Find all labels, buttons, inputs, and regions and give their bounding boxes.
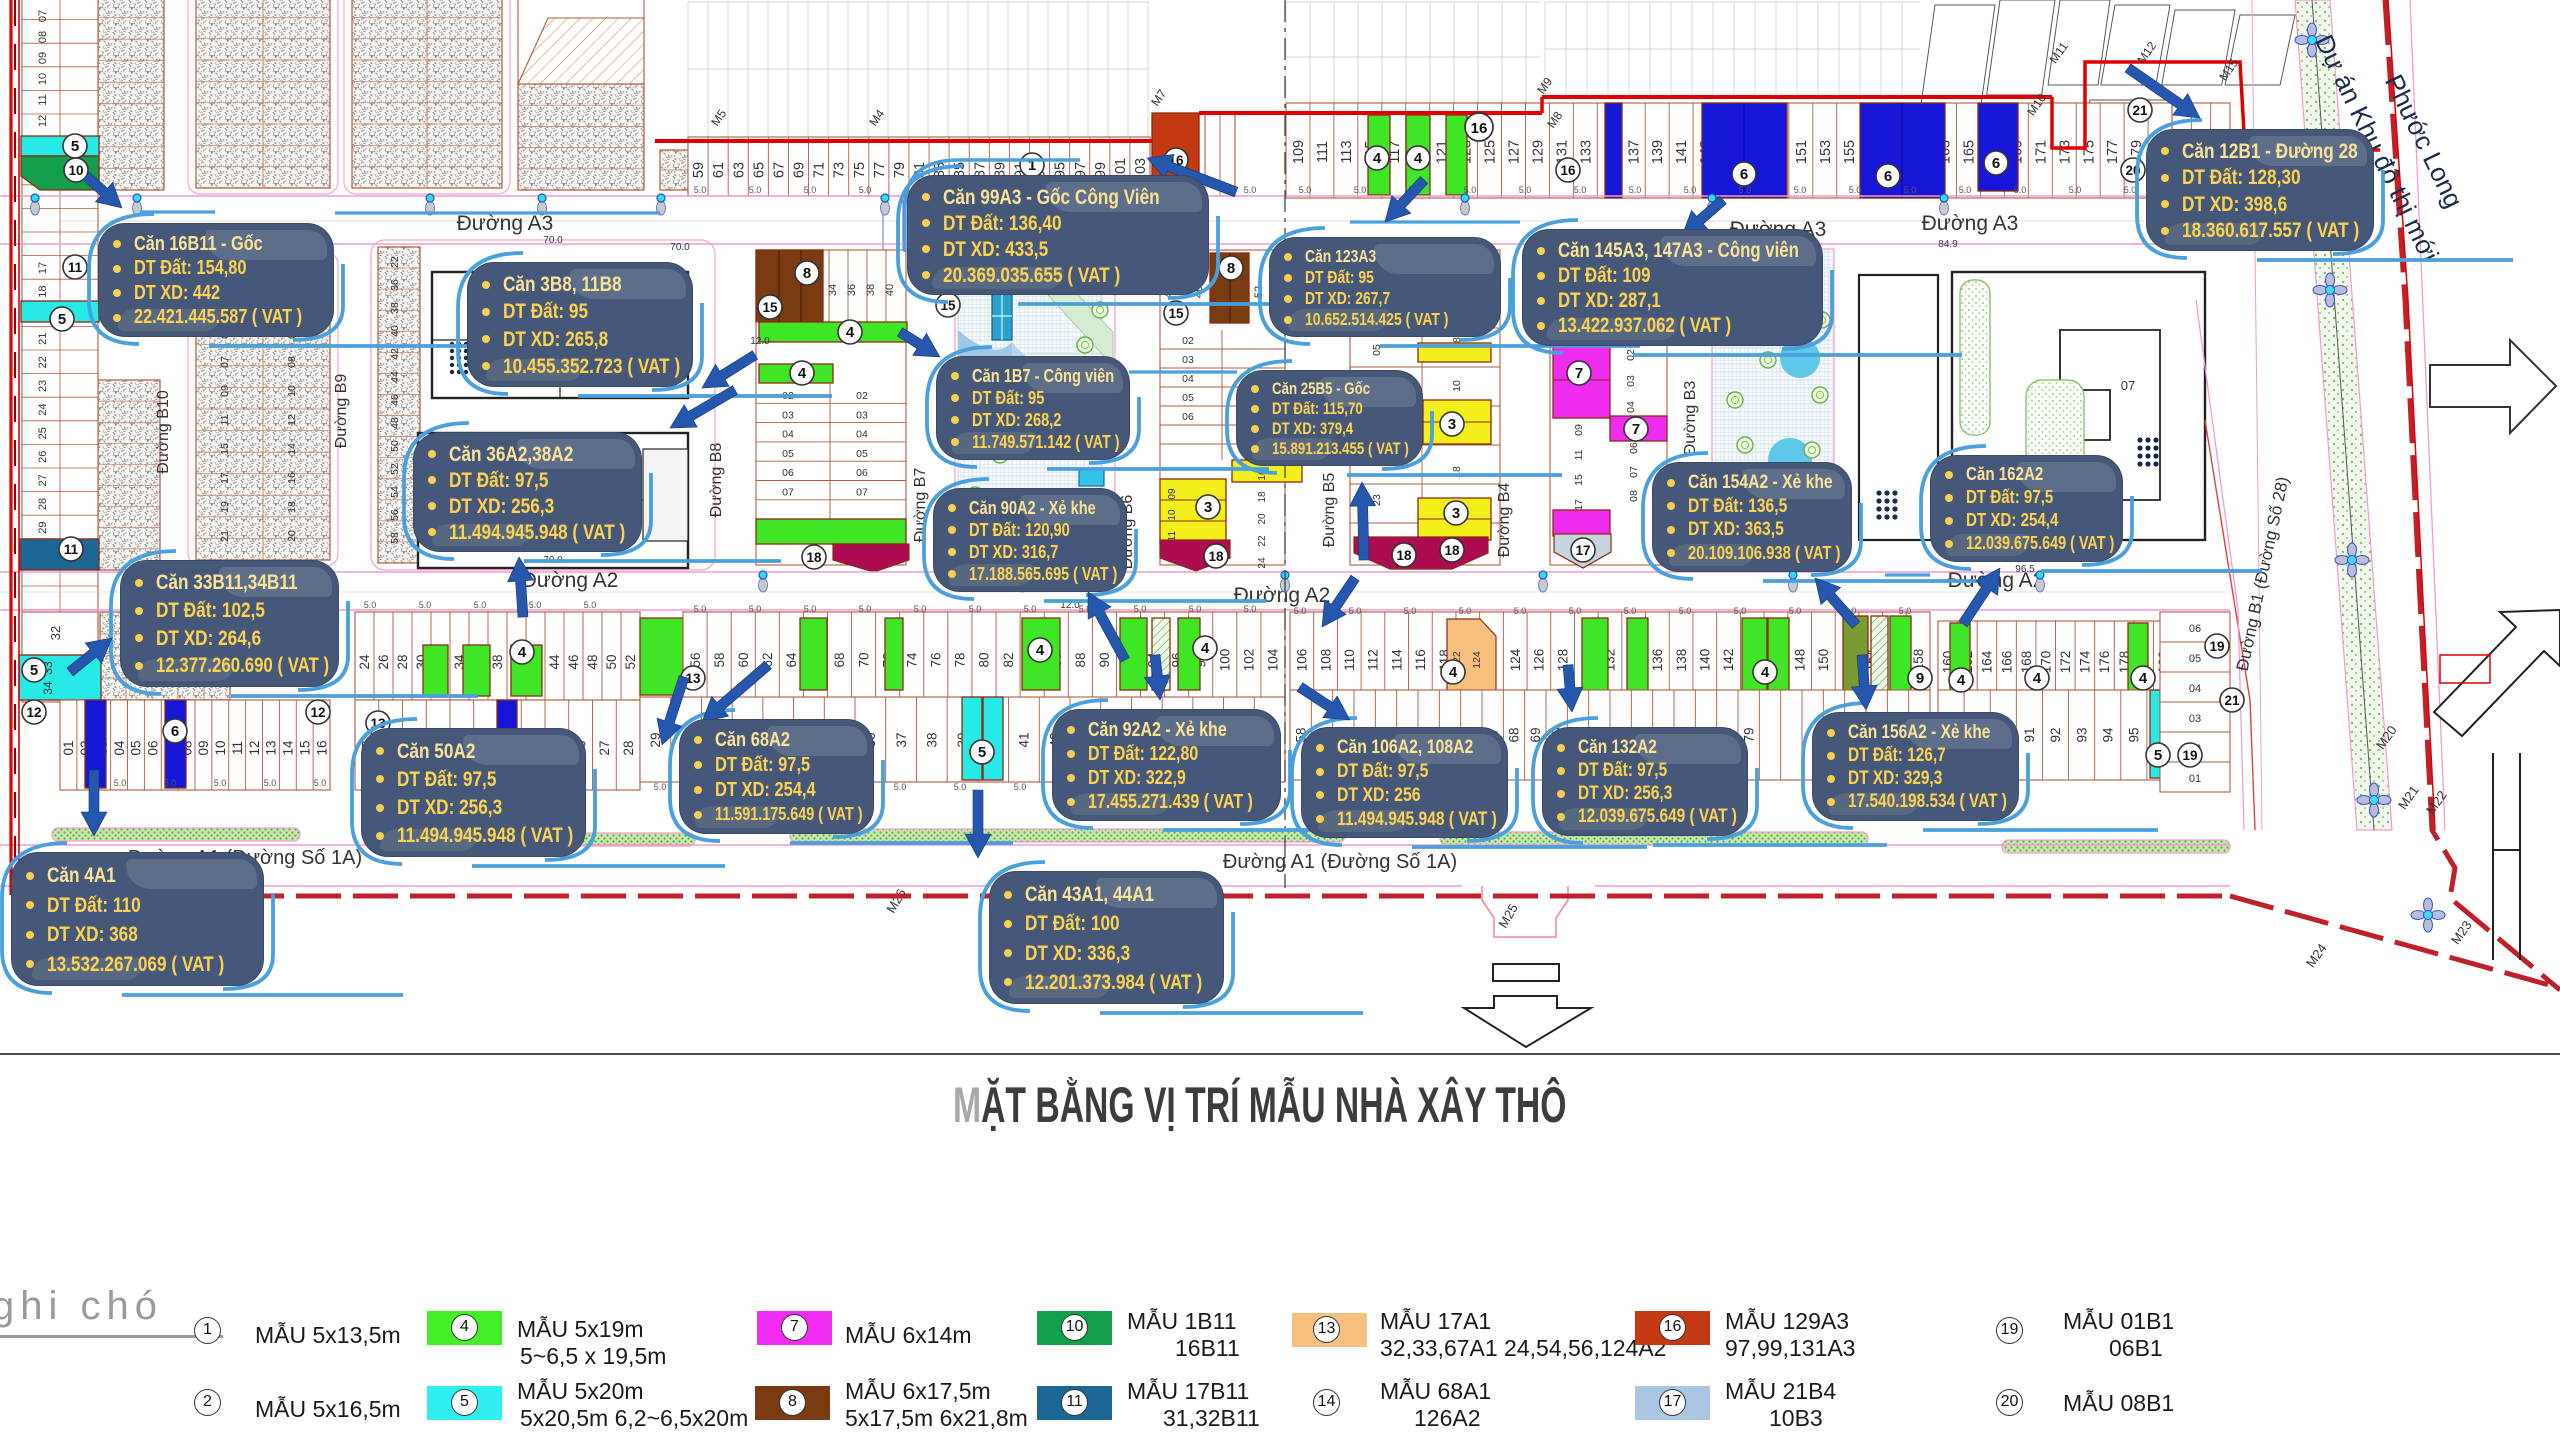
- svg-text:5.0: 5.0: [1794, 185, 1807, 195]
- svg-text:164: 164: [1980, 650, 1995, 673]
- svg-text:08: 08: [1628, 490, 1640, 502]
- svg-text:20: 20: [286, 530, 298, 542]
- svg-text:56: 56: [389, 509, 401, 521]
- svg-text:5.0: 5.0: [654, 782, 667, 792]
- svg-text:137: 137: [1626, 140, 1642, 164]
- svg-text:26: 26: [376, 654, 391, 669]
- svg-text:18: 18: [37, 285, 49, 297]
- svg-text:23: 23: [37, 380, 49, 392]
- svg-text:9: 9: [1916, 670, 1924, 687]
- svg-text:5.0: 5.0: [1569, 606, 1582, 616]
- svg-text:63: 63: [731, 162, 747, 178]
- svg-text:06: 06: [146, 740, 161, 755]
- svg-text:113: 113: [1339, 140, 1355, 163]
- svg-text:165: 165: [1962, 140, 1978, 164]
- svg-text:8: 8: [1227, 260, 1235, 277]
- svg-text:09: 09: [219, 385, 231, 397]
- svg-text:11: 11: [68, 260, 83, 275]
- svg-text:58: 58: [389, 532, 401, 544]
- svg-text:16: 16: [1471, 120, 1488, 137]
- svg-text:3: 3: [1448, 416, 1456, 433]
- svg-text:67: 67: [771, 162, 787, 178]
- svg-text:126: 126: [1532, 649, 1547, 672]
- svg-text:4: 4: [1373, 150, 1382, 167]
- svg-text:112: 112: [1366, 649, 1381, 671]
- svg-text:88: 88: [1073, 652, 1088, 667]
- svg-text:3: 3: [1452, 505, 1460, 522]
- svg-text:11: 11: [37, 94, 49, 105]
- svg-text:34: 34: [41, 681, 55, 695]
- svg-text:09: 09: [196, 740, 211, 755]
- svg-text:73: 73: [832, 162, 848, 178]
- svg-text:79: 79: [892, 162, 908, 178]
- svg-text:06: 06: [2189, 623, 2201, 635]
- svg-text:09: 09: [1167, 488, 1178, 500]
- svg-text:5: 5: [2154, 747, 2162, 764]
- svg-text:4: 4: [518, 644, 527, 661]
- svg-text:4: 4: [1414, 150, 1423, 167]
- svg-text:6: 6: [1740, 166, 1748, 183]
- svg-text:02: 02: [1182, 335, 1194, 347]
- svg-text:151: 151: [1794, 140, 1810, 164]
- svg-text:68: 68: [832, 652, 847, 667]
- svg-text:70.0: 70.0: [670, 242, 690, 253]
- svg-text:18: 18: [1257, 491, 1268, 503]
- svg-text:Đường A3: Đường A3: [1922, 212, 2019, 235]
- svg-text:38: 38: [925, 732, 940, 747]
- svg-text:5.0: 5.0: [1624, 606, 1637, 616]
- svg-text:77: 77: [872, 162, 888, 178]
- svg-text:02: 02: [856, 390, 868, 402]
- svg-text:10: 10: [1451, 380, 1463, 392]
- svg-text:06: 06: [1628, 442, 1640, 454]
- svg-text:5.0: 5.0: [584, 600, 597, 610]
- svg-text:10: 10: [68, 163, 83, 178]
- svg-text:11: 11: [219, 414, 231, 425]
- svg-text:69: 69: [792, 162, 808, 178]
- svg-text:15: 15: [297, 740, 312, 755]
- svg-text:05: 05: [129, 740, 144, 755]
- svg-text:141: 141: [1674, 140, 1690, 164]
- svg-text:4: 4: [1957, 672, 1966, 689]
- svg-text:5.0: 5.0: [1679, 606, 1692, 616]
- svg-text:108: 108: [1318, 649, 1333, 672]
- svg-text:Đường B3: Đường B3: [1682, 381, 1699, 456]
- svg-text:153: 153: [1818, 140, 1834, 164]
- svg-text:5.0: 5.0: [749, 604, 762, 614]
- svg-text:5: 5: [978, 744, 986, 761]
- svg-text:03: 03: [2189, 713, 2201, 725]
- svg-text:5.0: 5.0: [1134, 604, 1147, 614]
- svg-text:5.0: 5.0: [1189, 604, 1202, 614]
- svg-text:15: 15: [1168, 306, 1184, 321]
- svg-text:5.0: 5.0: [914, 604, 927, 614]
- svg-text:16: 16: [1560, 163, 1576, 178]
- svg-text:04: 04: [856, 429, 868, 441]
- svg-text:148: 148: [1792, 649, 1807, 672]
- svg-text:7: 7: [1632, 421, 1640, 438]
- svg-text:Đường B5: Đường B5: [1321, 473, 1338, 548]
- svg-text:46: 46: [566, 654, 581, 669]
- svg-text:5.0: 5.0: [1024, 604, 1037, 614]
- svg-text:05: 05: [782, 448, 794, 460]
- svg-text:5.0: 5.0: [1299, 185, 1312, 195]
- svg-text:4: 4: [1201, 640, 1210, 657]
- svg-text:155: 155: [1842, 140, 1858, 164]
- svg-text:05: 05: [856, 448, 868, 460]
- svg-text:74: 74: [904, 652, 919, 668]
- svg-text:04: 04: [112, 740, 127, 756]
- svg-text:5: 5: [71, 138, 79, 155]
- svg-text:04: 04: [2189, 683, 2201, 695]
- svg-text:11: 11: [1573, 449, 1585, 460]
- svg-text:136: 136: [1650, 649, 1665, 672]
- svg-text:44: 44: [389, 371, 401, 383]
- svg-text:07: 07: [856, 487, 868, 499]
- svg-text:177: 177: [2105, 140, 2121, 164]
- svg-text:22: 22: [389, 256, 401, 268]
- svg-text:129: 129: [1531, 140, 1547, 164]
- svg-text:166: 166: [1999, 651, 2014, 674]
- svg-text:5.0: 5.0: [1789, 606, 1802, 616]
- svg-text:5.0: 5.0: [804, 604, 817, 614]
- svg-text:07: 07: [782, 487, 794, 499]
- svg-text:104: 104: [1266, 648, 1281, 671]
- svg-text:139: 139: [1650, 140, 1666, 164]
- svg-text:5.0: 5.0: [419, 600, 432, 610]
- svg-text:17: 17: [37, 262, 49, 274]
- svg-text:Đường B9: Đường B9: [333, 374, 350, 449]
- svg-text:Đường B4: Đường B4: [1496, 483, 1513, 558]
- svg-text:5.0: 5.0: [1294, 606, 1307, 616]
- svg-text:52: 52: [623, 654, 638, 669]
- svg-text:03: 03: [1625, 375, 1637, 387]
- svg-text:92: 92: [2048, 727, 2063, 742]
- svg-text:124: 124: [1471, 651, 1483, 669]
- svg-text:111: 111: [1315, 141, 1331, 163]
- svg-text:106: 106: [1295, 649, 1310, 672]
- svg-text:12: 12: [247, 740, 262, 755]
- svg-text:109: 109: [1291, 140, 1307, 164]
- svg-text:20: 20: [1257, 513, 1268, 525]
- svg-text:07: 07: [219, 356, 231, 368]
- svg-text:21: 21: [2132, 103, 2148, 118]
- svg-text:14: 14: [286, 443, 298, 455]
- svg-text:5.0: 5.0: [1459, 606, 1472, 616]
- svg-text:3: 3: [1204, 499, 1212, 516]
- svg-text:06: 06: [782, 467, 794, 479]
- svg-text:82: 82: [1001, 652, 1016, 667]
- svg-text:12: 12: [26, 705, 41, 720]
- svg-text:27: 27: [37, 474, 49, 486]
- svg-text:25: 25: [37, 427, 49, 439]
- svg-text:10: 10: [1167, 509, 1178, 521]
- svg-text:76: 76: [929, 652, 944, 667]
- svg-text:26: 26: [37, 451, 49, 463]
- svg-text:174: 174: [2078, 650, 2093, 673]
- svg-text:03: 03: [856, 409, 868, 421]
- svg-text:04: 04: [782, 429, 794, 441]
- svg-text:50: 50: [389, 440, 401, 452]
- svg-text:5.0: 5.0: [1514, 606, 1527, 616]
- svg-text:93: 93: [2074, 727, 2089, 742]
- svg-text:41: 41: [1017, 732, 1032, 747]
- svg-text:64: 64: [784, 652, 799, 668]
- svg-text:4: 4: [798, 365, 807, 382]
- svg-text:5.0: 5.0: [1244, 604, 1257, 614]
- svg-text:5.0: 5.0: [694, 185, 707, 195]
- svg-text:5.0: 5.0: [1244, 185, 1257, 195]
- svg-text:4: 4: [2033, 670, 2042, 687]
- svg-text:11: 11: [230, 741, 245, 755]
- svg-text:5.0: 5.0: [1849, 185, 1862, 195]
- svg-text:5.0: 5.0: [214, 778, 227, 788]
- svg-text:6: 6: [171, 723, 179, 740]
- svg-text:38: 38: [490, 654, 505, 669]
- svg-text:01: 01: [61, 740, 76, 755]
- svg-text:18: 18: [806, 550, 822, 565]
- svg-text:5.0: 5.0: [1899, 606, 1912, 616]
- svg-text:46: 46: [389, 394, 401, 406]
- svg-text:116: 116: [1413, 649, 1428, 671]
- svg-text:14: 14: [281, 740, 296, 756]
- svg-text:04: 04: [1625, 401, 1637, 413]
- svg-text:24: 24: [37, 403, 49, 415]
- svg-text:127: 127: [1507, 140, 1523, 164]
- svg-text:95: 95: [2127, 727, 2142, 742]
- svg-text:12: 12: [286, 414, 298, 426]
- svg-text:5.0: 5.0: [1519, 185, 1532, 195]
- svg-text:5.0: 5.0: [114, 778, 127, 788]
- svg-text:09: 09: [37, 52, 49, 64]
- svg-text:10: 10: [37, 73, 49, 85]
- svg-text:44: 44: [547, 654, 562, 670]
- svg-text:16: 16: [286, 472, 298, 484]
- svg-text:58: 58: [712, 652, 727, 667]
- svg-text:Đường A1 (Đường Số 1A): Đường A1 (Đường Số 1A): [1223, 851, 1457, 873]
- svg-text:16: 16: [314, 740, 329, 755]
- svg-text:5.0: 5.0: [2124, 185, 2137, 195]
- svg-text:5.0: 5.0: [969, 604, 982, 614]
- svg-text:65: 65: [751, 162, 767, 178]
- svg-text:94: 94: [2100, 727, 2115, 743]
- svg-text:172: 172: [2058, 651, 2073, 674]
- svg-text:19: 19: [2209, 639, 2224, 654]
- svg-text:5.0: 5.0: [1574, 185, 1587, 195]
- svg-text:40: 40: [389, 325, 401, 337]
- svg-text:5.0: 5.0: [1349, 606, 1362, 616]
- svg-text:6: 6: [1884, 168, 1892, 185]
- svg-text:114: 114: [1389, 649, 1404, 671]
- svg-text:40: 40: [884, 284, 896, 296]
- svg-text:5.0: 5.0: [529, 600, 542, 610]
- svg-text:17: 17: [1575, 543, 1590, 558]
- svg-text:4: 4: [1449, 664, 1458, 681]
- svg-text:Đường A3: Đường A3: [457, 212, 554, 235]
- svg-text:18: 18: [1396, 548, 1412, 563]
- svg-text:56: 56: [688, 652, 703, 667]
- svg-text:5: 5: [30, 662, 38, 679]
- svg-text:7: 7: [1575, 365, 1583, 382]
- svg-text:78: 78: [953, 652, 968, 667]
- svg-text:125: 125: [1483, 140, 1499, 164]
- svg-text:70: 70: [856, 652, 871, 667]
- svg-text:38: 38: [865, 284, 877, 296]
- svg-text:110: 110: [1342, 649, 1357, 671]
- svg-text:5.0: 5.0: [859, 604, 872, 614]
- svg-text:5.0: 5.0: [314, 778, 327, 788]
- svg-text:124: 124: [1508, 648, 1523, 671]
- svg-text:10: 10: [213, 740, 228, 755]
- svg-text:5.0: 5.0: [954, 782, 967, 792]
- svg-text:32: 32: [48, 626, 63, 640]
- svg-text:08: 08: [37, 31, 49, 43]
- svg-text:05: 05: [1182, 392, 1194, 404]
- svg-text:Đường B7: Đường B7: [912, 468, 929, 543]
- svg-text:22: 22: [1257, 535, 1268, 547]
- svg-text:5.0: 5.0: [894, 782, 907, 792]
- svg-text:Đường B10: Đường B10: [155, 390, 172, 474]
- svg-text:5.0: 5.0: [1734, 606, 1747, 616]
- svg-text:80: 80: [977, 652, 992, 667]
- svg-text:42: 42: [389, 348, 401, 360]
- svg-text:8: 8: [803, 265, 811, 282]
- svg-text:91: 91: [2022, 727, 2037, 742]
- svg-text:96.5: 96.5: [2015, 564, 2035, 575]
- svg-text:50: 50: [604, 654, 619, 669]
- svg-text:48: 48: [389, 417, 401, 429]
- svg-text:18: 18: [286, 501, 298, 513]
- svg-text:13: 13: [264, 740, 279, 755]
- svg-text:21: 21: [37, 333, 49, 345]
- svg-text:06: 06: [1182, 411, 1194, 423]
- svg-text:04: 04: [1182, 373, 1194, 385]
- svg-text:03: 03: [1182, 354, 1194, 366]
- svg-text:19: 19: [219, 501, 231, 513]
- svg-text:28: 28: [395, 654, 410, 669]
- svg-text:5.0: 5.0: [264, 778, 277, 788]
- svg-text:100: 100: [1218, 649, 1233, 672]
- svg-text:4: 4: [1036, 642, 1045, 659]
- svg-text:5.0: 5.0: [1904, 185, 1917, 195]
- svg-text:15: 15: [1573, 474, 1585, 486]
- svg-text:5.0: 5.0: [474, 600, 487, 610]
- svg-text:24: 24: [1257, 557, 1268, 569]
- svg-text:15: 15: [219, 443, 231, 455]
- svg-text:140: 140: [1698, 649, 1713, 672]
- svg-text:150: 150: [1816, 649, 1831, 672]
- svg-text:90: 90: [1097, 652, 1112, 667]
- svg-text:27: 27: [597, 740, 612, 755]
- svg-text:138: 138: [1674, 649, 1689, 672]
- svg-text:24: 24: [357, 654, 372, 670]
- svg-text:48: 48: [585, 654, 600, 669]
- svg-text:15: 15: [762, 300, 778, 315]
- svg-text:59: 59: [691, 162, 707, 178]
- svg-text:17: 17: [219, 472, 231, 484]
- svg-text:5.0: 5.0: [1684, 185, 1697, 195]
- svg-text:Đường B8: Đường B8: [708, 443, 725, 518]
- svg-text:5.0: 5.0: [859, 185, 872, 195]
- svg-text:5.0: 5.0: [2069, 185, 2082, 195]
- svg-text:05: 05: [2189, 653, 2201, 665]
- svg-text:08: 08: [286, 356, 298, 368]
- svg-text:4: 4: [1761, 664, 1770, 681]
- svg-text:52: 52: [389, 463, 401, 475]
- svg-text:Đường A2: Đường A2: [522, 569, 619, 592]
- svg-text:01: 01: [2189, 773, 2201, 785]
- svg-text:4: 4: [2139, 670, 2148, 687]
- svg-text:11: 11: [64, 542, 79, 557]
- svg-text:5.0: 5.0: [1404, 606, 1417, 616]
- svg-text:18: 18: [1208, 549, 1224, 564]
- svg-text:173: 173: [2057, 140, 2073, 164]
- svg-text:21: 21: [2224, 693, 2240, 708]
- svg-text:5.0: 5.0: [1354, 185, 1367, 195]
- svg-text:07: 07: [2121, 378, 2135, 393]
- svg-text:84.9: 84.9: [1938, 239, 1958, 250]
- svg-text:10: 10: [286, 385, 298, 397]
- svg-text:28: 28: [621, 740, 636, 755]
- svg-text:21: 21: [219, 530, 231, 542]
- svg-text:36: 36: [389, 279, 401, 291]
- svg-text:17: 17: [1573, 499, 1585, 511]
- svg-text:142: 142: [1721, 649, 1736, 672]
- svg-text:176: 176: [2097, 651, 2112, 674]
- svg-text:09: 09: [1573, 424, 1585, 436]
- svg-text:4: 4: [846, 324, 855, 341]
- svg-text:38: 38: [389, 302, 401, 314]
- svg-text:19: 19: [2182, 748, 2197, 763]
- svg-text:22: 22: [37, 356, 49, 368]
- svg-text:5: 5: [58, 311, 66, 328]
- svg-text:12: 12: [37, 115, 49, 127]
- svg-text:5.0: 5.0: [1959, 185, 1972, 195]
- svg-text:18: 18: [1444, 543, 1460, 558]
- svg-text:5.0: 5.0: [694, 604, 707, 614]
- svg-text:34: 34: [827, 284, 839, 296]
- svg-text:5.0: 5.0: [2014, 185, 2027, 195]
- svg-text:5.0: 5.0: [364, 600, 377, 610]
- svg-text:36: 36: [846, 284, 858, 296]
- svg-text:07: 07: [37, 10, 49, 22]
- svg-text:75: 75: [852, 162, 868, 178]
- svg-text:102: 102: [1242, 649, 1257, 672]
- svg-text:61: 61: [711, 162, 727, 178]
- svg-text:133: 133: [1578, 140, 1594, 164]
- svg-text:6: 6: [1992, 155, 2000, 172]
- svg-text:5.0: 5.0: [164, 778, 177, 788]
- svg-text:06: 06: [856, 467, 868, 479]
- svg-text:71: 71: [812, 162, 828, 178]
- svg-text:12: 12: [310, 705, 325, 720]
- svg-text:03: 03: [782, 409, 794, 421]
- svg-text:54: 54: [389, 486, 401, 498]
- svg-text:60: 60: [736, 652, 751, 667]
- svg-text:5.0: 5.0: [749, 185, 762, 195]
- svg-text:12.0: 12.0: [750, 336, 770, 347]
- svg-text:5.0: 5.0: [1629, 185, 1642, 195]
- svg-text:37: 37: [894, 732, 909, 747]
- svg-text:5.0: 5.0: [804, 185, 817, 195]
- svg-text:07: 07: [1628, 466, 1640, 478]
- svg-text:68: 68: [1507, 727, 1522, 742]
- svg-text:29: 29: [37, 521, 49, 533]
- svg-text:171: 171: [2033, 140, 2049, 164]
- svg-text:5.0: 5.0: [1014, 782, 1027, 792]
- svg-text:28: 28: [37, 498, 49, 510]
